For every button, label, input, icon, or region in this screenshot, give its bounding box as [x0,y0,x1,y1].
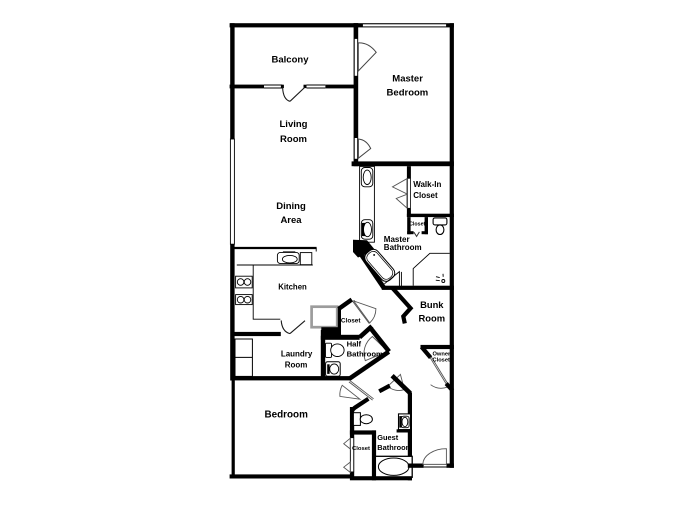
svg-text:Master: Master [392,73,423,84]
svg-text:Bathroom: Bathroom [347,350,383,359]
svg-text:Living: Living [280,119,308,130]
svg-text:Owner: Owner [433,351,451,357]
svg-text:Half: Half [347,339,362,348]
svg-text:Bathroom: Bathroom [377,443,412,452]
svg-text:Room: Room [285,361,308,370]
svg-text:Closet: Closet [352,446,370,452]
svg-text:Kitchen: Kitchen [278,283,307,292]
svg-text:Bedroom: Bedroom [387,87,429,98]
svg-text:Area: Area [280,215,302,226]
svg-text:Guest: Guest [377,433,398,442]
svg-text:Room: Room [280,134,307,145]
svg-text:Closet: Closet [409,221,425,227]
svg-text:Bedroom: Bedroom [265,410,309,421]
svg-text:Laundry: Laundry [281,350,313,359]
svg-text:Balcony: Balcony [272,54,310,65]
svg-text:Bathroom: Bathroom [384,243,422,252]
svg-text:Closet: Closet [341,318,361,325]
svg-text:Dining: Dining [276,201,306,212]
svg-text:Closet: Closet [413,191,438,200]
svg-text:Walk-In: Walk-In [413,180,441,189]
svg-text:Closet: Closet [433,358,450,364]
svg-text:Room: Room [419,312,446,323]
svg-text:Bunk: Bunk [420,299,444,310]
